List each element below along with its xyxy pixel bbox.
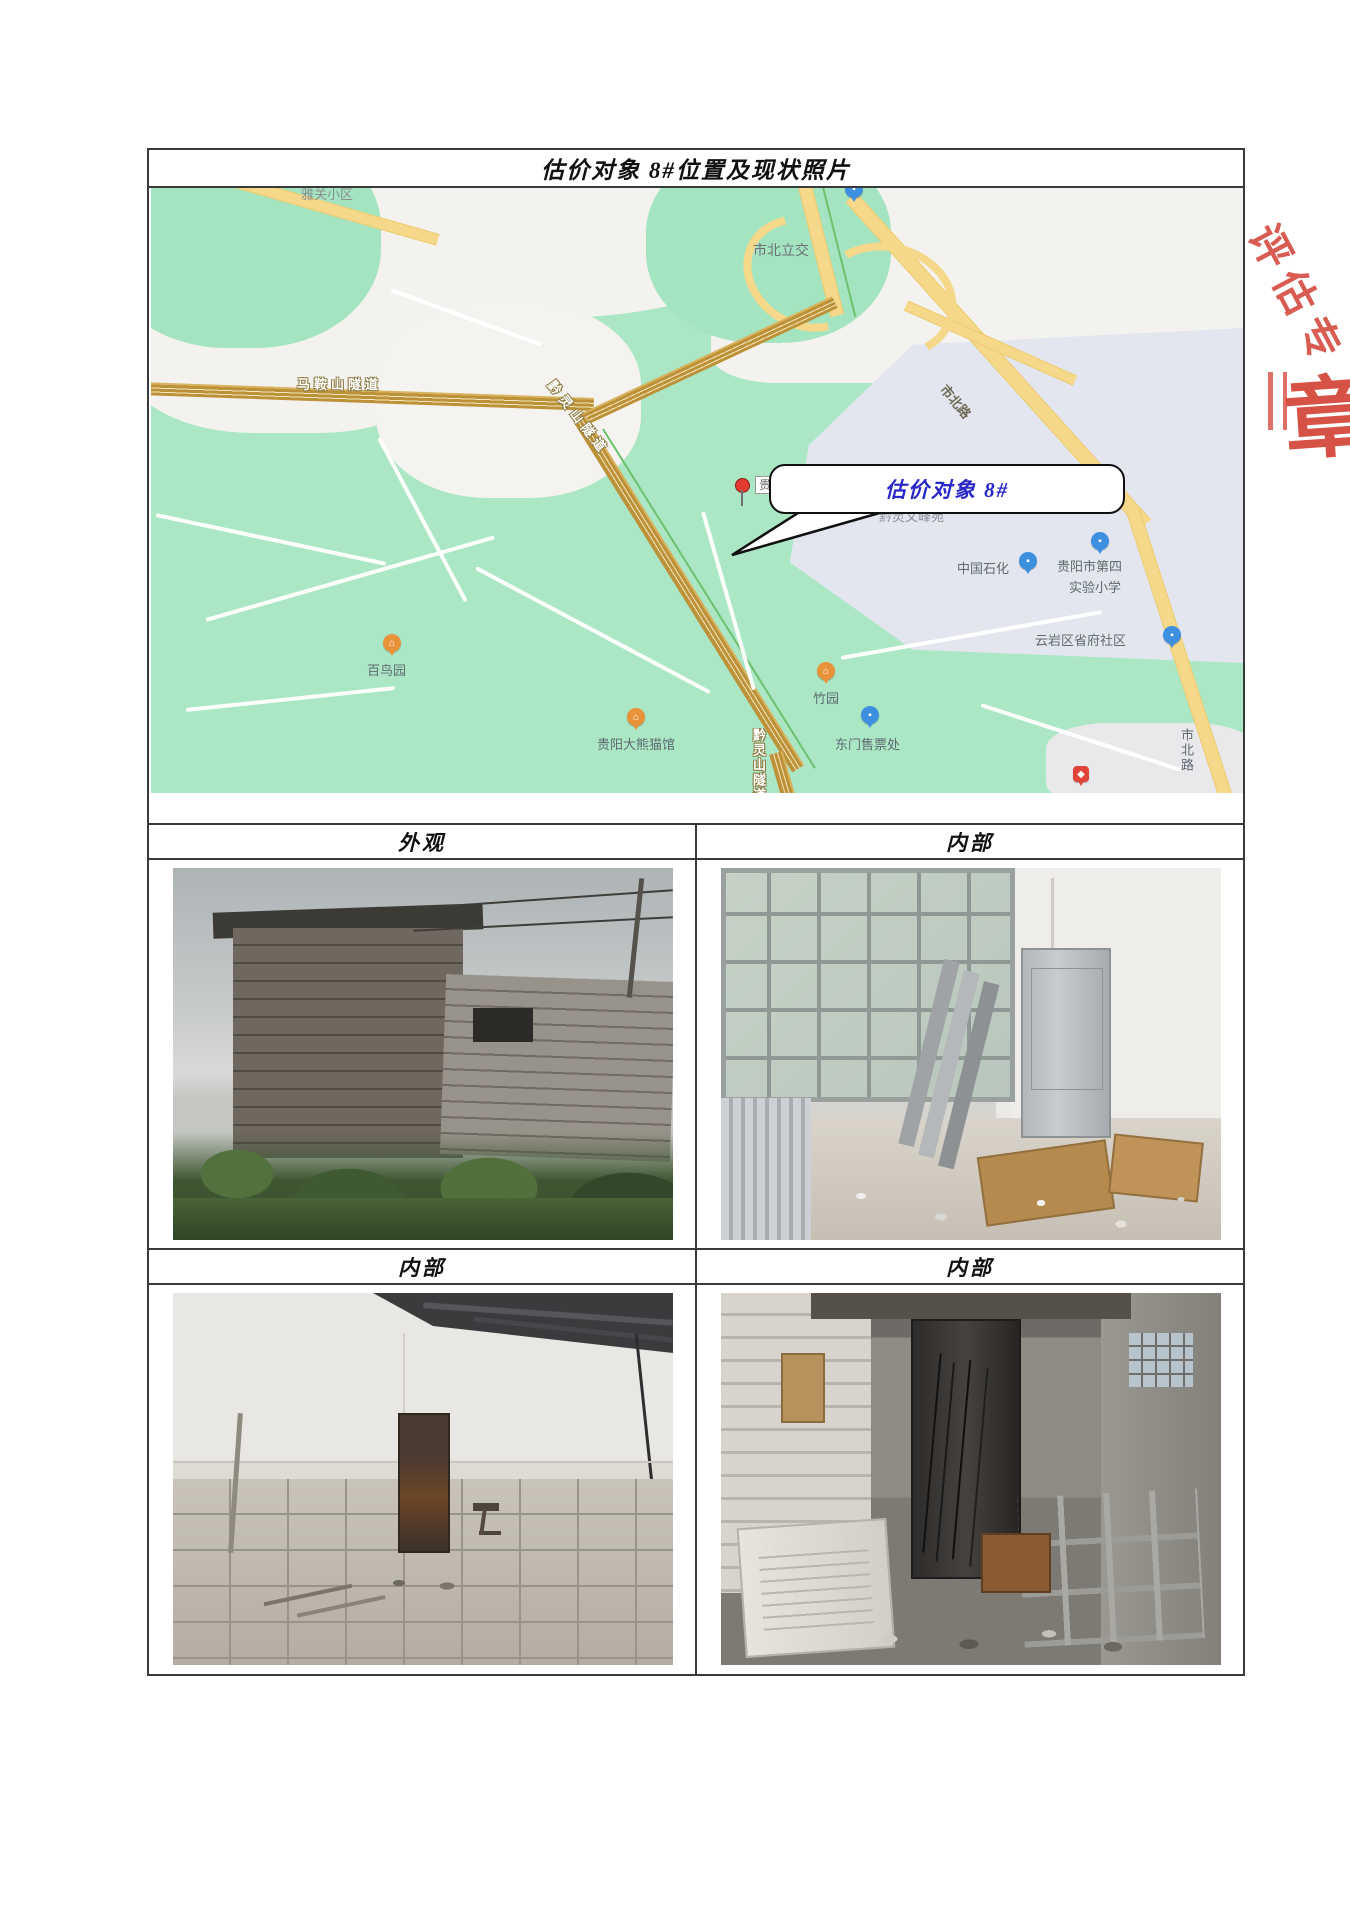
map-label-sinopec: 中国石化 [957,558,1009,577]
map-label-bainiaoyuan: 百鸟园 [367,660,406,679]
section-header: 外观 [149,825,695,858]
map-label-maanshan-tunnel: 马鞍山隧道 [297,374,382,393]
map-label-qianlingshan-tunnel-vertical: 黔灵山隧道 [749,728,768,793]
stamp-fragment-bottom: 章 [1280,345,1350,478]
section-header: 内部 [697,1250,1243,1283]
poi-glyph: ▪ [868,710,872,721]
photo-detail [398,1413,450,1553]
callout-bubble: 估价对象 8# [769,464,1125,514]
photo-table: 估价对象 8#位置及现状照片 [147,148,1245,1676]
table-title-row: 估价对象 8#位置及现状照片 [149,150,1243,188]
photo-detail [363,1568,483,1598]
photo-cell-interior-3 [697,1285,1243,1675]
bainiaoyuan-park-icon: ⌂ [383,634,401,652]
park-glyph: ⌂ [389,638,395,649]
photo-row-1 [149,860,1243,1250]
qianlingshan-highway [575,417,804,772]
map-label-panda-house: 贵阳大熊猫馆 [597,734,675,753]
park-glyph: ⌂ [633,712,639,723]
photo-cell-interior-1 [697,860,1243,1248]
photo-detail [1031,968,1103,1090]
photo-row-2 [149,1285,1243,1675]
document-page: 估价对象 8#位置及现状照片 [0,0,1350,1909]
badge-glyph: ◆ [1077,769,1085,780]
panda-house-icon: ⌂ [627,708,645,726]
poi-glyph: ▪ [1026,556,1030,567]
photo-detail [721,1098,811,1240]
photo-detail [781,1353,825,1423]
minor-road [156,513,387,566]
east-gate-icon: ▪ [861,706,879,724]
header-cell-interior-1: 内部 [697,825,1243,858]
poi-glyph: ▪ [1170,630,1174,641]
location-map: 雅关小区 市北立交 市北路 黔灵文峰苑 中国石化 贵阳市第四 实验小学 云岩区省… [151,188,1243,793]
zhuyuan-park-icon: ⌂ [817,662,835,680]
photo-interior-window-room [721,868,1221,1240]
photo-exterior-building [173,868,673,1240]
photo-interior-equipment-room [721,1293,1221,1665]
map-label-shengfu-community: 云岩区省府社区 [1035,630,1126,649]
photo-interior-empty-room [173,1293,673,1665]
photo-detail [635,1333,655,1492]
photo-detail [841,1613,1161,1665]
photo-detail [173,1198,673,1240]
poi-glyph: ▪ [1098,536,1102,547]
sinopec-icon: ▪ [1019,552,1037,570]
section-header: 内部 [149,1250,695,1283]
photo-detail [1129,1333,1193,1387]
map-label-school-line2: 实验小学 [1069,577,1121,596]
header-row-2: 内部 内部 [149,1250,1243,1285]
header-cell-interior-2: 内部 [149,1250,697,1283]
minor-road [186,686,395,712]
map-row: 雅关小区 市北立交 市北路 黔灵文峰苑 中国石化 贵阳市第四 实验小学 云岩区省… [149,188,1243,825]
map-label-school-line1: 贵阳市第四 [1057,556,1122,575]
header-cell-interior-3: 内部 [697,1250,1243,1283]
header-row-1: 外观 内部 [149,825,1243,860]
section-header: 内部 [697,825,1243,858]
header-cell-exterior: 外观 [149,825,697,858]
photo-cell-interior-2 [149,1285,697,1675]
photo-detail [981,1533,1051,1593]
school-icon: ▪ [1091,532,1109,550]
red-badge-icon: ◆ [1073,766,1089,782]
callout-text: 估价对象 8# [885,474,1009,504]
photo-detail [811,1293,1131,1319]
community-icon: ▪ [1163,626,1181,644]
photo-detail [821,1168,1221,1238]
map-label-east-gate: 东门售票处 [835,734,900,753]
map-label-shibei-road-lower: 市北路 [1177,728,1196,773]
map-label-shibei-lijiao: 市北立交 [753,240,809,260]
page-title: 估价对象 8#位置及现状照片 [541,151,851,185]
poi-glyph: ▪ [852,188,856,195]
map-label-zhuyuan: 竹园 [813,688,839,707]
photo-cell-exterior [149,860,697,1248]
park-glyph: ⌂ [823,666,829,677]
photo-detail [473,1008,533,1042]
photo-detail [721,868,1015,1102]
map-label-yaguan: 雅关小区 [301,188,353,203]
